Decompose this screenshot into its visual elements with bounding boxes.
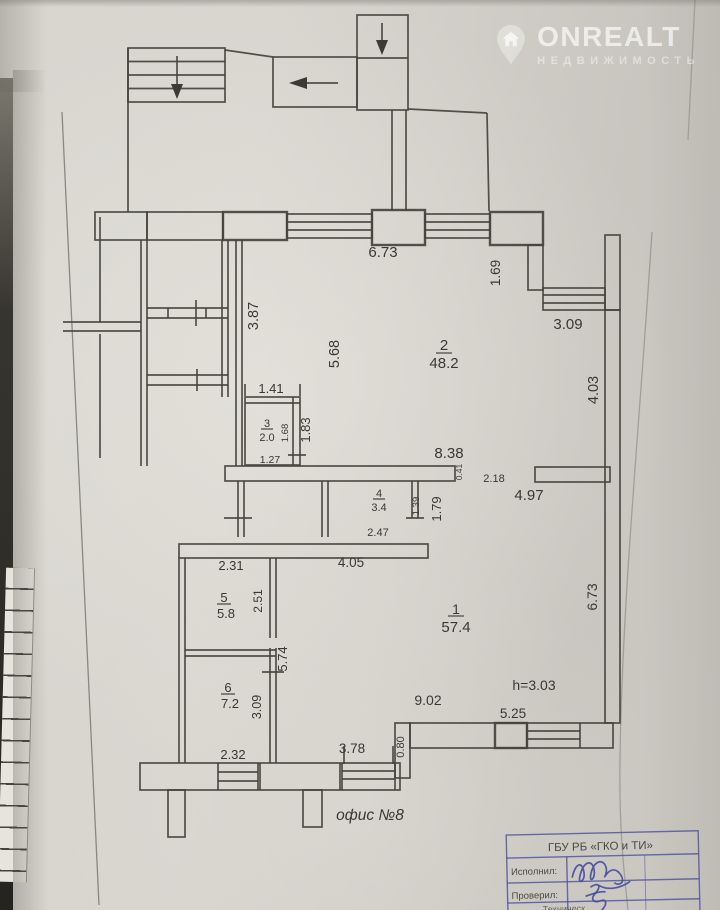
dim-label: 1.27 bbox=[260, 454, 281, 466]
floorplan-drawing: 6.73 1.69 3.09 4.03 3.87 5.68 1.41 1.68 … bbox=[0, 0, 720, 910]
dim-label: 1.41 bbox=[258, 381, 283, 396]
window bbox=[425, 214, 490, 238]
right-wall bbox=[605, 235, 620, 723]
room-area: 57.4 bbox=[441, 619, 470, 636]
room-area: 5.8 bbox=[217, 606, 235, 621]
watermark-tagline: НЕДВИЖИМОСТЬ bbox=[537, 55, 700, 67]
dim-label: 1.79 bbox=[429, 496, 444, 521]
room-area: 2.0 bbox=[259, 432, 274, 444]
watermark-text: ONREALT НЕДВИЖИМОСТЬ bbox=[537, 23, 700, 67]
top-wall bbox=[95, 210, 605, 310]
stamp-row3-label: Техническ bbox=[543, 903, 586, 910]
window bbox=[287, 214, 372, 238]
dim-label: 1.68 bbox=[280, 424, 291, 443]
dim-label: 8.38 bbox=[434, 445, 463, 462]
dim-label: 1.39 bbox=[411, 497, 422, 516]
entrance-zone bbox=[128, 15, 489, 212]
window bbox=[218, 763, 258, 790]
room-label-underlines bbox=[217, 353, 464, 694]
left-neighbour-walls bbox=[63, 217, 147, 466]
room-3-walls bbox=[245, 384, 306, 465]
window bbox=[543, 288, 605, 310]
office-label: офис №8 bbox=[336, 807, 404, 824]
paper-fold-lines bbox=[62, 0, 695, 910]
entry-left-arrow-icon bbox=[289, 77, 338, 89]
dim-label: 4.97 bbox=[514, 487, 543, 504]
corridor-partitions bbox=[179, 481, 428, 558]
stamp-row2-label: Проверил: bbox=[511, 890, 558, 902]
watermark-brand: ONREALT bbox=[537, 23, 681, 51]
dim-label: 0.80 bbox=[395, 736, 407, 757]
dim-label: 1.83 bbox=[298, 417, 313, 442]
dim-label: 9.02 bbox=[414, 692, 441, 708]
dim-label: 2.51 bbox=[251, 589, 265, 613]
dim-label: 3.09 bbox=[250, 695, 264, 719]
rooms-5-6-walls bbox=[179, 558, 284, 763]
dim-label: 5.25 bbox=[500, 706, 526, 721]
dim-label: 0.41 bbox=[454, 463, 464, 480]
stairs-down-arrow-icon bbox=[171, 56, 183, 99]
room-number: 4 bbox=[376, 488, 382, 500]
signature-proveril bbox=[585, 884, 606, 910]
room-number: 3 bbox=[264, 418, 270, 430]
watermark: ONREALT НЕДВИЖИМОСТЬ bbox=[495, 22, 700, 67]
room-number: 6 bbox=[224, 680, 231, 695]
dim-label: 3.09 bbox=[553, 316, 582, 333]
dim-label: 4.03 bbox=[586, 376, 602, 404]
porch-down-arrow-icon bbox=[376, 23, 388, 55]
left-storage-rooms bbox=[147, 240, 242, 466]
dim-label: 3.78 bbox=[339, 741, 365, 756]
room-number: 2 bbox=[440, 337, 448, 354]
dim-label: 2.47 bbox=[367, 527, 388, 539]
entry-corridor bbox=[273, 57, 357, 107]
stamp: ГБУ РБ «ГКО и ТИ» Исполнил: Проверил: Те… bbox=[506, 831, 700, 910]
dim-label: 4.05 bbox=[338, 555, 364, 570]
signature-ispolnil bbox=[572, 861, 631, 889]
dim-label: 6.73 bbox=[368, 244, 397, 261]
middle-walls bbox=[225, 466, 610, 482]
dim-label: 2.31 bbox=[218, 558, 243, 573]
stamp-row1-label: Исполнил: bbox=[511, 866, 557, 878]
onrealt-pin-house-icon bbox=[495, 22, 527, 67]
height-note: h=3.03 bbox=[512, 677, 555, 693]
room-area: 48.2 bbox=[429, 355, 458, 372]
floorplan-photo: 6.73 1.69 3.09 4.03 3.87 5.68 1.41 1.68 … bbox=[0, 0, 720, 910]
room-area: 3.4 bbox=[371, 502, 386, 514]
dim-label: 2.32 bbox=[220, 747, 245, 762]
dim-label: 3.87 bbox=[246, 302, 262, 330]
dim-label: 5.68 bbox=[327, 340, 343, 368]
dim-label: 1.69 bbox=[488, 260, 503, 286]
room-number: 1 bbox=[452, 601, 460, 617]
dim-label: 2.18 bbox=[483, 473, 504, 485]
window bbox=[527, 723, 580, 748]
dim-label: 6.73 bbox=[584, 583, 600, 610]
dim-label: 5.74 bbox=[275, 646, 290, 671]
window bbox=[342, 763, 395, 790]
stamp-org: ГБУ РБ «ГКО и ТИ» bbox=[548, 840, 653, 854]
room-number: 5 bbox=[220, 590, 227, 605]
room-area: 7.2 bbox=[221, 696, 239, 711]
